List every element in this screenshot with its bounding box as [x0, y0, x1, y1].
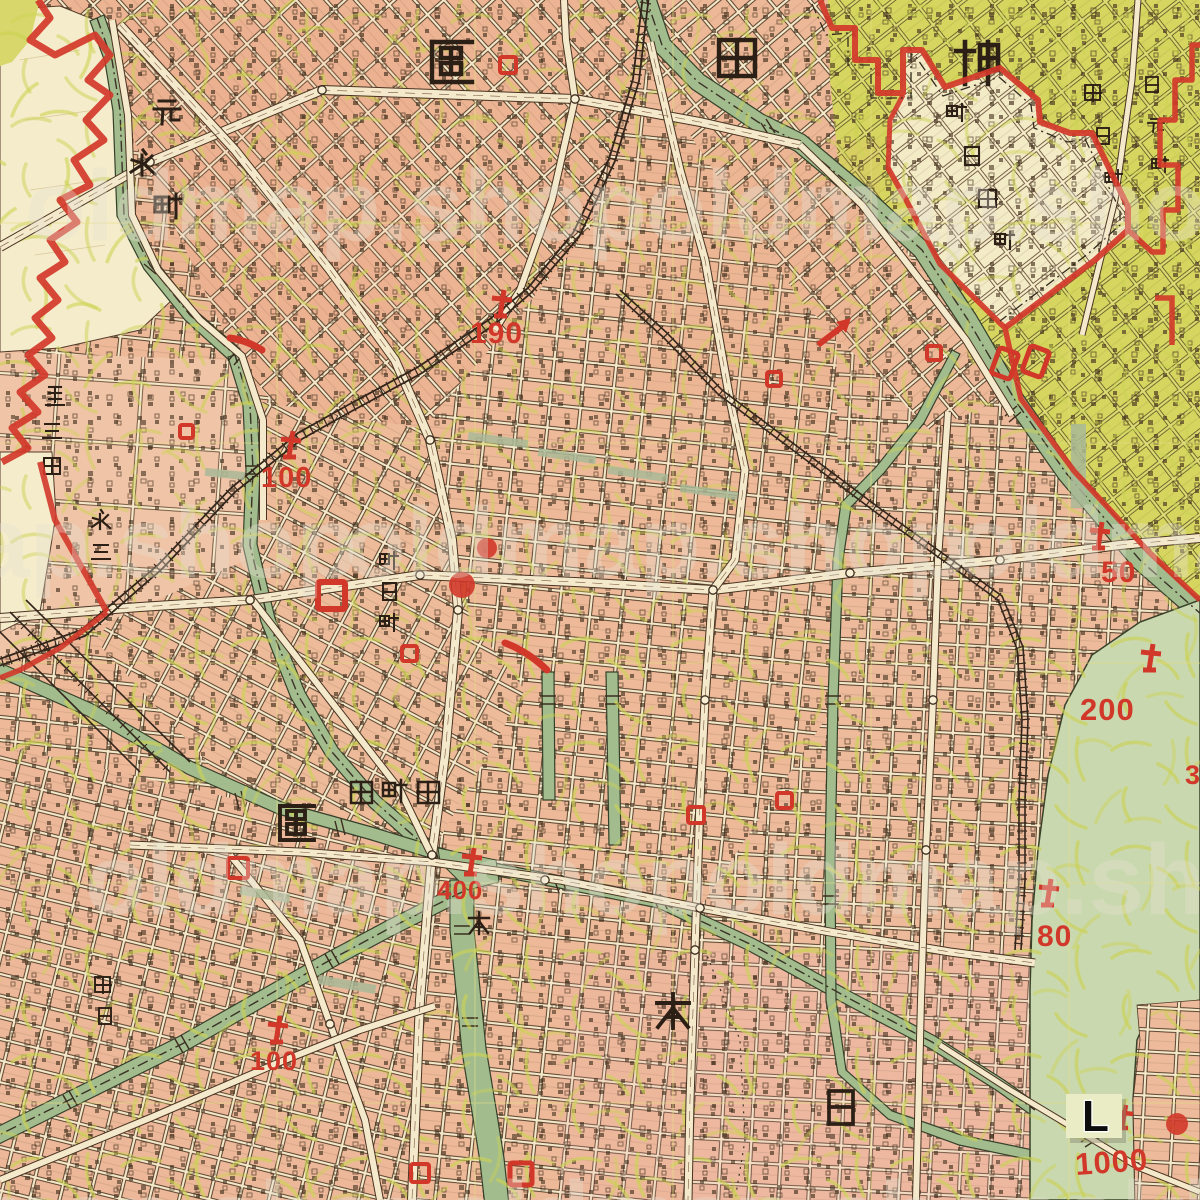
svg-text:190: 190	[470, 317, 523, 350]
svg-text:oldmap.shop: oldmap.shop	[0, 1161, 442, 1200]
svg-text:100: 100	[250, 1046, 298, 1076]
svg-text:3: 3	[1185, 760, 1200, 790]
svg-text:oldmap.shop: oldmap.shop	[25, 150, 647, 262]
svg-text:200: 200	[1080, 692, 1135, 727]
svg-text:oldmap.shop: oldmap.shop	[0, 487, 357, 599]
svg-text:L: L	[1082, 1092, 1109, 1141]
svg-text:oldmap.shop: oldmap.shop	[1060, 1161, 1200, 1200]
svg-text:oldmap.shop: oldmap.shop	[440, 1161, 1062, 1200]
svg-text:oldmap.shop: oldmap.shop	[85, 824, 707, 936]
svg-text:oldmap.shop: oldmap.shop	[345, 487, 967, 599]
svg-text:oldmap.shop: oldmap.shop	[705, 824, 1200, 936]
svg-text:oldmap.shop: oldmap.shop	[645, 150, 1200, 262]
svg-text:oldmap.shop: oldmap.shop	[955, 487, 1200, 599]
